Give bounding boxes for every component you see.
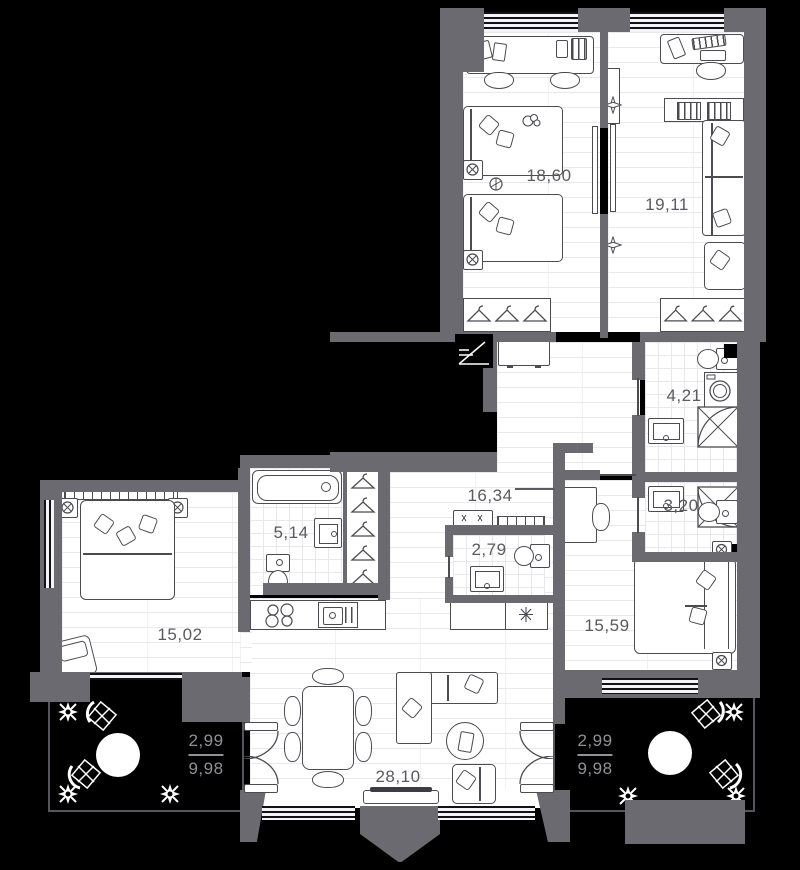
chair: [550, 72, 580, 89]
chair: [355, 732, 372, 762]
chair: [592, 503, 610, 531]
tablet-icon: [700, 50, 726, 61]
flower-icon: [58, 784, 78, 804]
tv: [370, 787, 432, 792]
stove-icon: [262, 602, 300, 628]
window: [484, 12, 578, 32]
door-leaf: [637, 378, 639, 416]
fraction-line: [577, 754, 612, 756]
balcony-door-arc: [518, 756, 554, 784]
chair: [284, 732, 301, 762]
window: [438, 806, 535, 820]
balcony-door-leaf: [520, 722, 554, 731]
wall: [553, 453, 565, 700]
balcony-table: [648, 731, 692, 775]
wall-bay: [360, 806, 440, 862]
bed: [634, 558, 736, 654]
wall: [445, 535, 453, 557]
fridge: [505, 600, 548, 630]
area-label-bathroom-large: 4,21: [666, 386, 701, 406]
wall-pillar: [578, 8, 630, 32]
bed: [80, 500, 175, 600]
chair: [696, 62, 726, 80]
chair: [355, 696, 372, 726]
toilet-bowl: [698, 502, 720, 522]
sliding-door-panel: [610, 124, 616, 212]
book-icon: [556, 40, 568, 58]
balcony-area-reduced: 2,99: [577, 731, 612, 751]
area-label-bedroom-left: 15,02: [157, 625, 202, 645]
vent-shaft: [724, 344, 738, 358]
toilet-bowl: [514, 546, 534, 566]
wall: [632, 415, 645, 480]
wall: [445, 577, 453, 597]
fan-icon: [488, 176, 504, 192]
sink: [648, 418, 684, 444]
coffee-table: [446, 722, 484, 760]
area-label-bedroom-right: 15,59: [584, 616, 629, 636]
wall: [632, 482, 645, 498]
wall-stub: [536, 790, 570, 842]
area-label-hallway: 16,34: [467, 486, 512, 506]
balcony-door-arc: [244, 731, 280, 759]
wall-pillar: [440, 8, 484, 72]
lamp-icon: [712, 652, 732, 670]
window: [262, 806, 355, 820]
area-label-wc: 2,79: [471, 540, 506, 560]
window: [90, 673, 182, 680]
fraction-line: [188, 754, 223, 756]
wall-exterior: [737, 342, 760, 672]
kitchen-sink: [318, 602, 358, 628]
tv-console: [363, 790, 439, 804]
door-leaf: [448, 556, 450, 578]
area-label-bathroom-small: 5,14: [273, 523, 308, 543]
wall: [632, 472, 740, 482]
area-label-living-kitchen: 28,10: [375, 767, 420, 787]
wall-partition: [343, 468, 347, 583]
door-leaf: [637, 497, 639, 533]
console-table: [498, 338, 550, 366]
wall: [238, 468, 250, 632]
chair: [312, 771, 344, 788]
wall: [744, 8, 766, 338]
balcony-right-label: 2,99 9,98: [577, 731, 612, 779]
washing-machine: [704, 372, 738, 408]
wall: [378, 455, 390, 600]
sink: [470, 566, 504, 592]
corner-shower: [697, 406, 739, 448]
door-leaf: [600, 474, 636, 476]
wall-partition: [600, 214, 608, 338]
wall-stub: [625, 800, 745, 844]
teddy-icon: [520, 112, 542, 130]
balcony-door-leaf: [244, 722, 278, 731]
flower-icon: [58, 702, 78, 722]
bookshelf: [664, 98, 744, 122]
chair: [484, 72, 514, 89]
area-label-bedroom-top-left: 18,60: [526, 166, 571, 186]
floor-plan: 2,99 9,98 2,99 9,98: [0, 0, 800, 870]
wall-partition: [600, 32, 608, 128]
wall-pillar: [182, 677, 250, 722]
area-label-shower-room: 3,20: [663, 496, 698, 516]
area-label-room-top-right: 19,11: [645, 195, 689, 215]
window: [602, 678, 698, 694]
wall-stub: [553, 443, 593, 453]
flower-icon: [160, 784, 180, 804]
wall: [40, 480, 240, 492]
sliding-door-panel: [592, 126, 598, 214]
balcony-area-full: 9,98: [577, 759, 612, 779]
lamp-icon: [463, 160, 483, 180]
wardrobe: [660, 298, 746, 332]
balcony-door-leaf: [244, 784, 278, 793]
wall: [263, 583, 390, 595]
wall: [330, 332, 440, 342]
wall: [445, 595, 555, 603]
balcony-area-full: 9,98: [188, 759, 223, 779]
balcony-door-leaf: [520, 784, 554, 793]
wall: [632, 342, 645, 380]
floor-connector: [240, 632, 252, 672]
wardrobe: [463, 298, 551, 332]
lamp-icon: [463, 250, 483, 270]
flower-icon: [724, 702, 744, 722]
window: [44, 500, 54, 588]
bathtub: [252, 470, 342, 504]
wall: [640, 332, 766, 342]
wall: [445, 525, 555, 535]
wall: [240, 455, 390, 468]
balcony-area-reduced: 2,99: [188, 731, 223, 751]
balcony-left-label: 2,99 9,98: [188, 731, 223, 779]
chair: [312, 668, 344, 685]
wall: [440, 72, 463, 338]
toilet-bowl: [697, 349, 719, 369]
window: [630, 12, 724, 32]
chair: [284, 696, 301, 726]
wardrobe-hangers: [350, 470, 376, 592]
paper-icon: [492, 42, 507, 62]
entrance-door: [455, 334, 493, 368]
sink: [314, 518, 342, 548]
leader-line: [515, 488, 555, 490]
balcony-door-arc: [518, 731, 554, 759]
books-icon: [571, 38, 587, 60]
wall: [553, 698, 565, 724]
wall: [565, 470, 600, 480]
balcony-chair: [684, 692, 728, 736]
dining-table: [302, 686, 354, 770]
wall: [632, 552, 740, 562]
balcony-door-arc: [244, 756, 280, 784]
